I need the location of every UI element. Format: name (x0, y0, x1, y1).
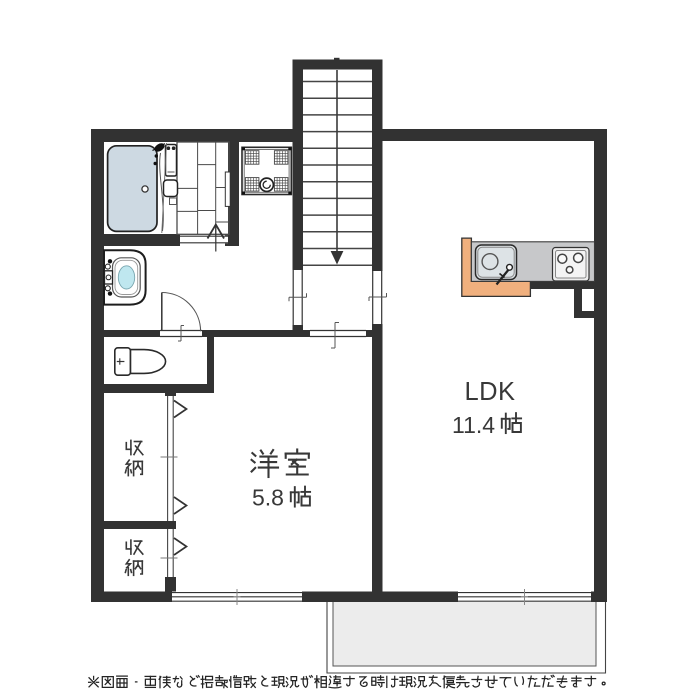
svg-text:LDK: LDK (464, 378, 515, 406)
svg-text:11.4: 11.4 (452, 412, 495, 438)
svg-text:5.8: 5.8 (252, 485, 284, 511)
